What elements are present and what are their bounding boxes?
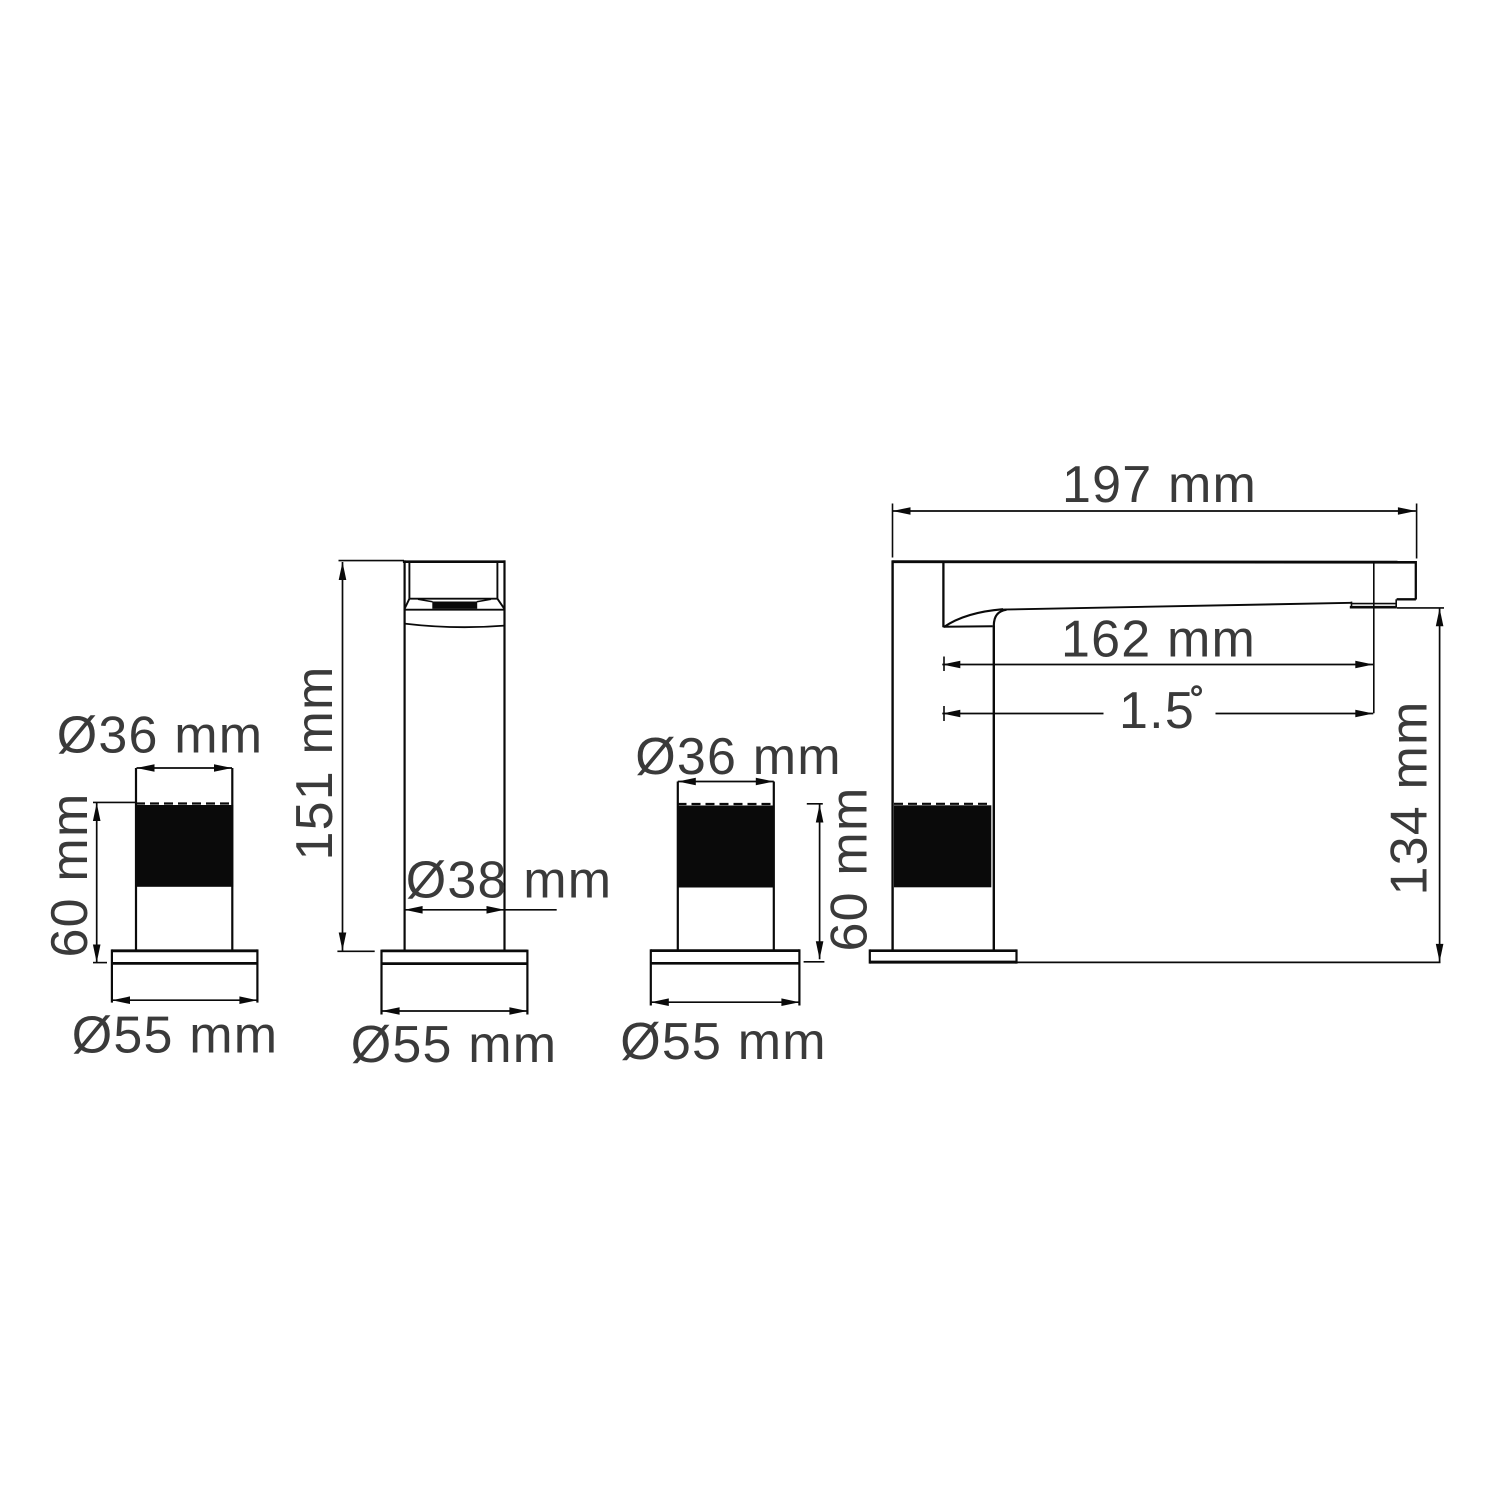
svg-text:1.5: 1.5 bbox=[1119, 682, 1195, 740]
svg-text:Ø55 mm: Ø55 mm bbox=[72, 1007, 279, 1065]
svg-text:162 mm: 162 mm bbox=[1061, 611, 1256, 669]
svg-text:197 mm: 197 mm bbox=[1062, 456, 1257, 514]
svg-text:Ø55 mm: Ø55 mm bbox=[620, 1013, 827, 1071]
svg-text:Ø55 mm: Ø55 mm bbox=[351, 1016, 558, 1074]
svg-text:Ø36 mm: Ø36 mm bbox=[635, 728, 842, 786]
svg-text:Ø38 mm: Ø38 mm bbox=[406, 852, 613, 910]
svg-text:Ø36 mm: Ø36 mm bbox=[57, 707, 264, 765]
svg-text:60 mm: 60 mm bbox=[821, 787, 879, 952]
svg-text:151 mm: 151 mm bbox=[286, 665, 344, 860]
svg-text:134 mm: 134 mm bbox=[1381, 700, 1439, 895]
svg-text:60 mm: 60 mm bbox=[41, 793, 99, 958]
